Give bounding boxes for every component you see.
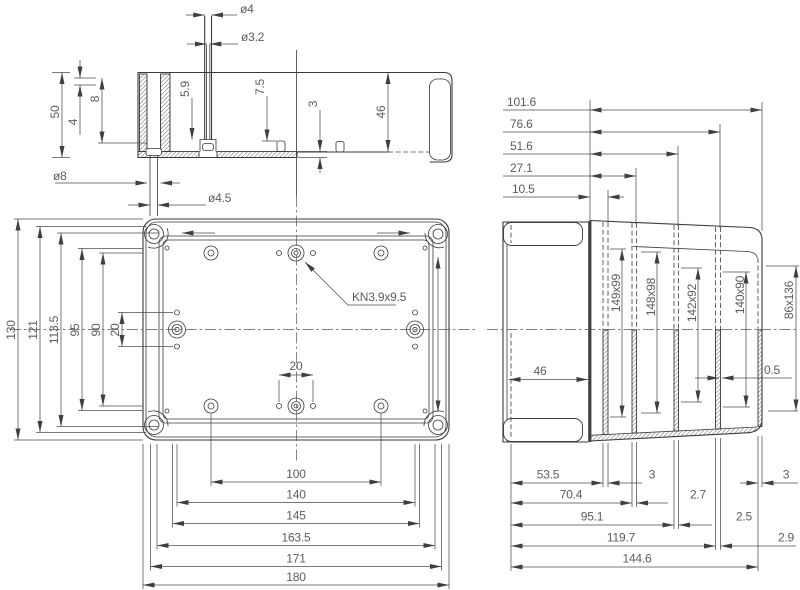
opening-5-label: 86x136 [782, 280, 796, 319]
dim-20v-label: 20 [108, 323, 122, 336]
dim-105-label: 10.5 [512, 182, 535, 196]
dim-20h-label: 20 [290, 359, 303, 373]
dim-145-label: 145 [286, 509, 306, 523]
wall-hatch-left [140, 74, 148, 152]
dim-dia4-label: ø4 [240, 2, 254, 16]
wall-1-hatch [603, 330, 608, 435]
dim-1135-label: 113.5 [47, 315, 61, 344]
dim-121-label: 121 [26, 320, 40, 340]
dim-4-ext [74, 78, 96, 85]
dim-27-label: 2.7 [690, 488, 707, 502]
dim-3a-label: 3 [649, 468, 656, 482]
dim-516-label: 51.6 [510, 139, 533, 153]
pin-outer-lines [205, 16, 212, 140]
section-view: ø4 ø3.2 50 8 4 5.9 7.5 3 46 ø8 ø4.5 [48, 2, 452, 216]
dim-90-label: 90 [89, 323, 103, 336]
wall-2-hatch [632, 330, 637, 433]
dim-1446-label: 144.6 [622, 552, 652, 566]
dim-100-label: 100 [286, 467, 306, 481]
dim-130-label: 130 [4, 320, 18, 340]
lid-box-outline [503, 222, 588, 442]
dim-1635-label: 163.5 [281, 531, 311, 545]
plan-view: KN3.9x9.5 130 121 113.5 95 90 20 20 100 … [4, 196, 478, 589]
base-plate-hatch-right [217, 152, 297, 158]
dim-05-label: 0.5 [764, 363, 781, 377]
technical-drawing: ø4 ø3.2 50 8 4 5.9 7.5 3 46 ø8 ø4.5 [0, 0, 800, 590]
pin-seat [203, 144, 214, 151]
rib-2 [336, 142, 344, 153]
dim-46sec-label: 46 [374, 105, 388, 118]
dim-766-label: 76.6 [510, 117, 533, 131]
dim-180-label: 180 [286, 570, 306, 584]
dim-4-label: 4 [66, 118, 80, 125]
dim-3sec-label: 3 [306, 100, 320, 107]
opening-1-label: 149x99 [609, 273, 623, 312]
dim-1016-label: 101.6 [507, 95, 537, 109]
pin-inner-lines [206, 44, 209, 140]
top-dim-extensions [590, 100, 762, 231]
wall-4-hatch [716, 330, 721, 429]
wall-3-hatch [674, 330, 679, 431]
dim-171-label: 171 [286, 552, 306, 566]
dim-535-label: 53.5 [537, 468, 560, 482]
opening-4-label: 140x90 [733, 275, 747, 314]
dim-704-label: 70.4 [560, 488, 583, 502]
dim-50-label: 50 [48, 105, 62, 118]
dim-20h-ext [279, 380, 313, 402]
dim-dia45-label: ø4.5 [208, 191, 232, 205]
wall-hatch-right [161, 74, 170, 152]
opening-arrow-ticks [610, 249, 799, 417]
opening-3-label: 142x92 [685, 283, 699, 322]
dim-271-label: 27.1 [510, 161, 533, 175]
dim-46side-label: 46 [534, 364, 547, 378]
opening-2-label: 148x98 [644, 277, 658, 316]
dim-29-label: 2.9 [778, 531, 795, 545]
kn-callout-label: KN3.9x9.5 [352, 290, 407, 304]
dim-951-label: 95.1 [581, 510, 604, 524]
dim-8-label: 8 [88, 95, 102, 102]
dim-140-label: 140 [286, 488, 306, 502]
foot-hole-lines [150, 156, 158, 217]
dim-dia8-label: ø8 [53, 169, 67, 183]
mating-face [588, 221, 591, 442]
dim-95-label: 95 [68, 323, 82, 336]
gasket-bottom [504, 419, 583, 442]
side-view: 46 101.6 76.6 51.6 27.1 10.5 149x99 148x… [487, 95, 799, 571]
dim-20v-ext [118, 313, 173, 347]
dim-dia32-label: ø3.2 [241, 30, 265, 44]
dim-59-label: 5.9 [178, 80, 192, 97]
rib-1 [277, 141, 285, 152]
gasket-top [504, 223, 583, 246]
gasket-channel-section [430, 79, 451, 160]
dim-3b-label: 3 [783, 468, 790, 482]
dim-25-label: 2.5 [736, 510, 753, 524]
drawing-canvas: ø4 ø3.2 50 8 4 5.9 7.5 3 46 ø8 ø4.5 [0, 0, 800, 590]
dim-75-label: 7.5 [253, 78, 267, 95]
screw-seat [146, 149, 162, 156]
dim-1197-label: 119.7 [607, 531, 636, 545]
base-top-slope [590, 221, 750, 228]
